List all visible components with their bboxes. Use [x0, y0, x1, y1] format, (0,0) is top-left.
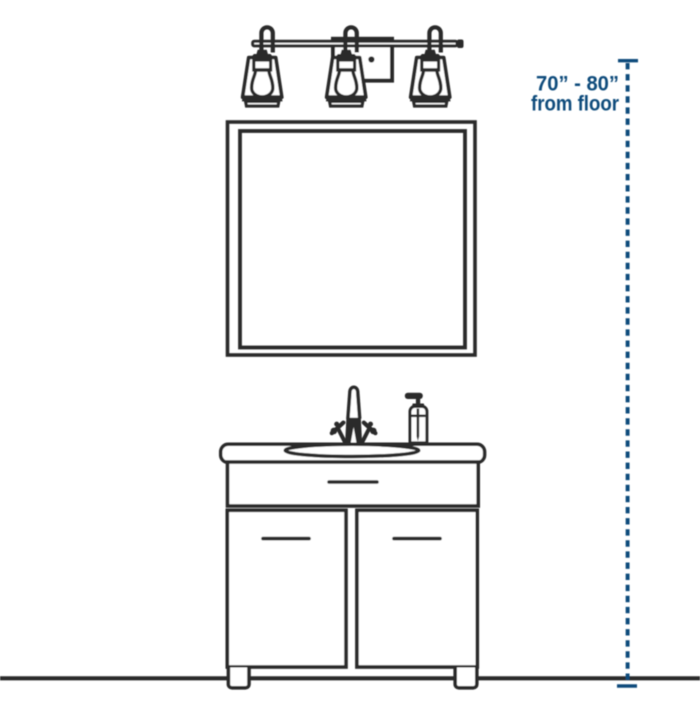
svg-text:from floor: from floor: [531, 92, 619, 115]
